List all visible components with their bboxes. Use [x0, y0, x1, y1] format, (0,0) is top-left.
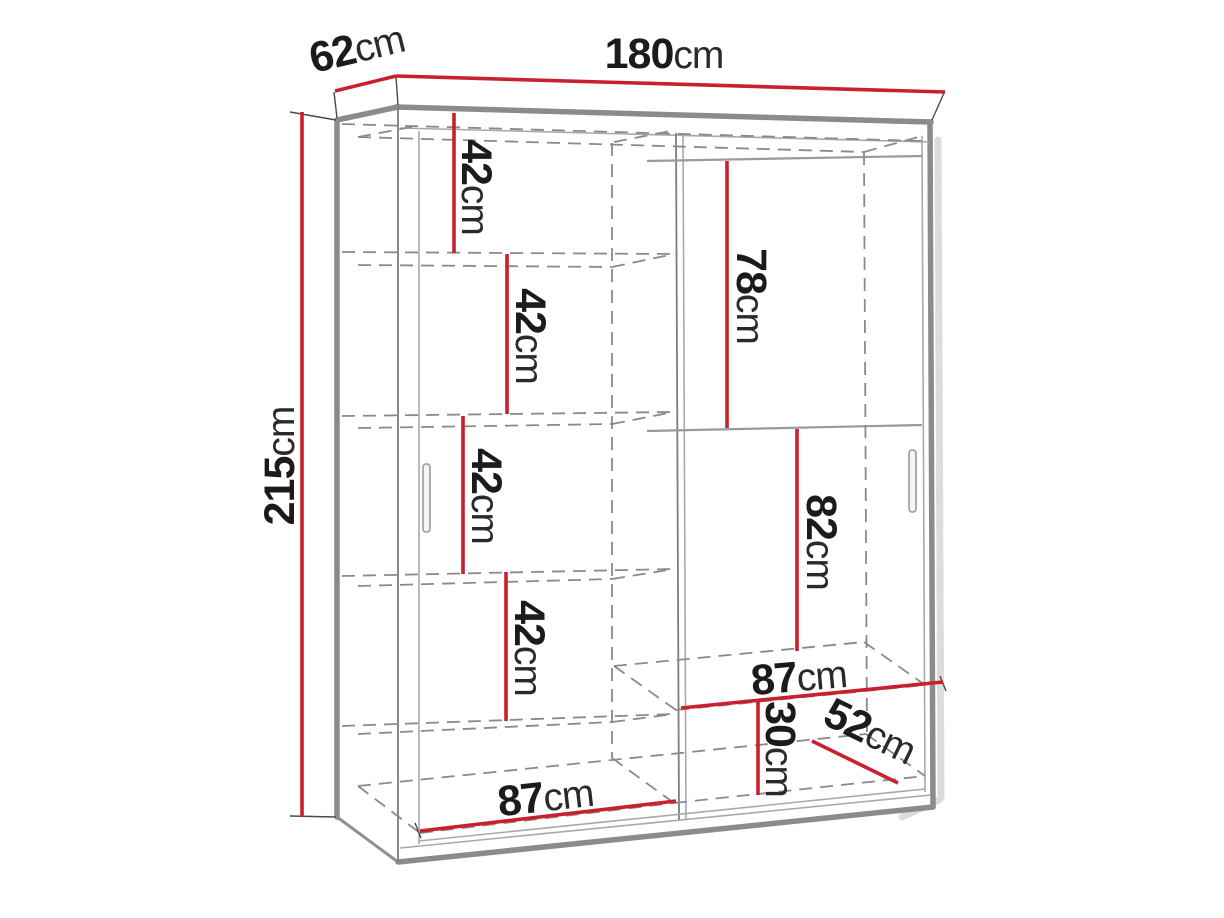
dim-label-78: 78cm [727, 248, 775, 344]
dim-label-42-3: 42cm [462, 448, 510, 544]
dim-label-180: 180cm [605, 30, 724, 78]
diagram-canvas: 180cm 62cm 215cm 42cm 42cm 42cm 42cm 78c… [0, 0, 1224, 918]
dim-label-42-1: 42cm [452, 139, 500, 235]
tick-62-front [396, 77, 398, 105]
tick-180-right [932, 93, 944, 120]
dim-label-30: 30cm [756, 701, 804, 797]
dim-label-42-4: 42cm [505, 600, 553, 696]
dim-label-62: 62cm [305, 14, 409, 83]
wardrobe-structure [337, 107, 933, 862]
tick-215-top [290, 112, 336, 120]
tick-215-bottom [290, 816, 336, 817]
dim-label-215: 215cm [256, 407, 304, 526]
right-door-handle [909, 450, 916, 512]
dim-label-42-2: 42cm [506, 288, 554, 384]
left-door-handle [423, 464, 430, 532]
front-right-edge [930, 122, 933, 807]
shadow-right [938, 140, 941, 798]
wardrobe-side-panel [337, 107, 398, 862]
wardrobe-diagram: 180cm 62cm 215cm 42cm 42cm 42cm 42cm 78c… [0, 0, 1224, 918]
dim-line-62 [335, 76, 396, 91]
tick-62-back [334, 92, 337, 118]
dim-line-180 [396, 76, 945, 92]
dim-label-82: 82cm [797, 494, 845, 590]
